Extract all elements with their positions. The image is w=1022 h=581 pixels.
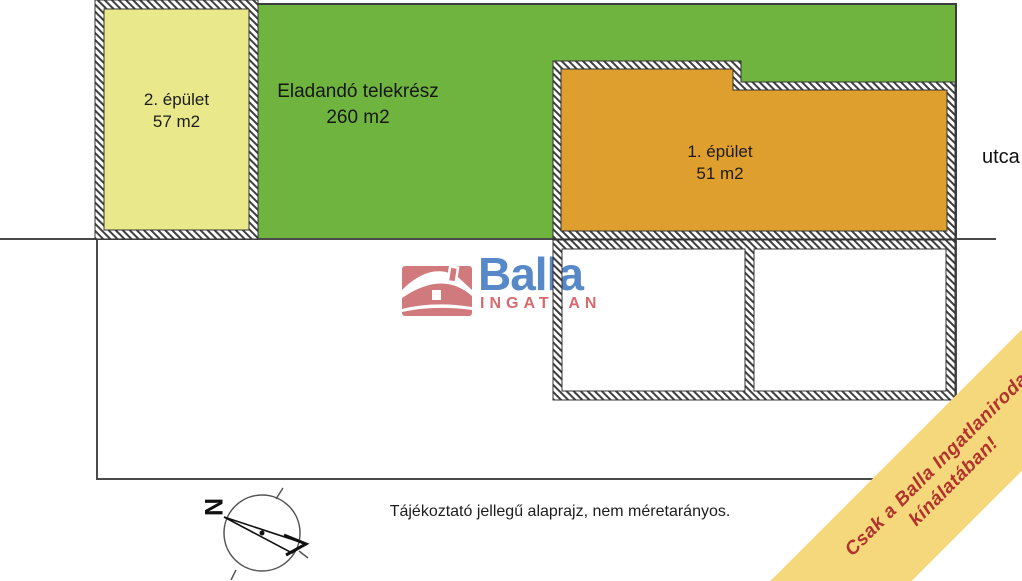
disclaimer-note: Tájékoztató jellegű alaprajz, nem méreta… [320,503,800,521]
street-label: utca [982,146,1020,169]
plot-name: Eladandó telekrész [253,79,463,105]
compass-icon: N [198,483,328,581]
plot-size: 260 m2 [253,105,463,131]
building-2-label: 2. épület 57 m2 [95,89,258,133]
building-2-name: 2. épület [95,89,258,111]
plot-label: Eladandó telekrész 260 m2 [253,79,463,131]
building-1-label: 1. épület 51 m2 [560,141,880,185]
building-1-name: 1. épület [560,141,880,163]
balla-logo: Balla INGATLAN [400,258,655,324]
building-2-size: 57 m2 [95,111,258,133]
north-needle-icon [224,517,306,553]
north-label: N [199,498,227,516]
logo-brand-subtitle: INGATLAN [480,295,601,313]
house-icon [402,264,472,318]
logo-brand-name: Balla [478,251,583,297]
site-plan-image: Balla INGATLAN Eladandó telekrész 260 m2 [0,0,1022,581]
building-1-size: 51 m2 [560,163,880,185]
